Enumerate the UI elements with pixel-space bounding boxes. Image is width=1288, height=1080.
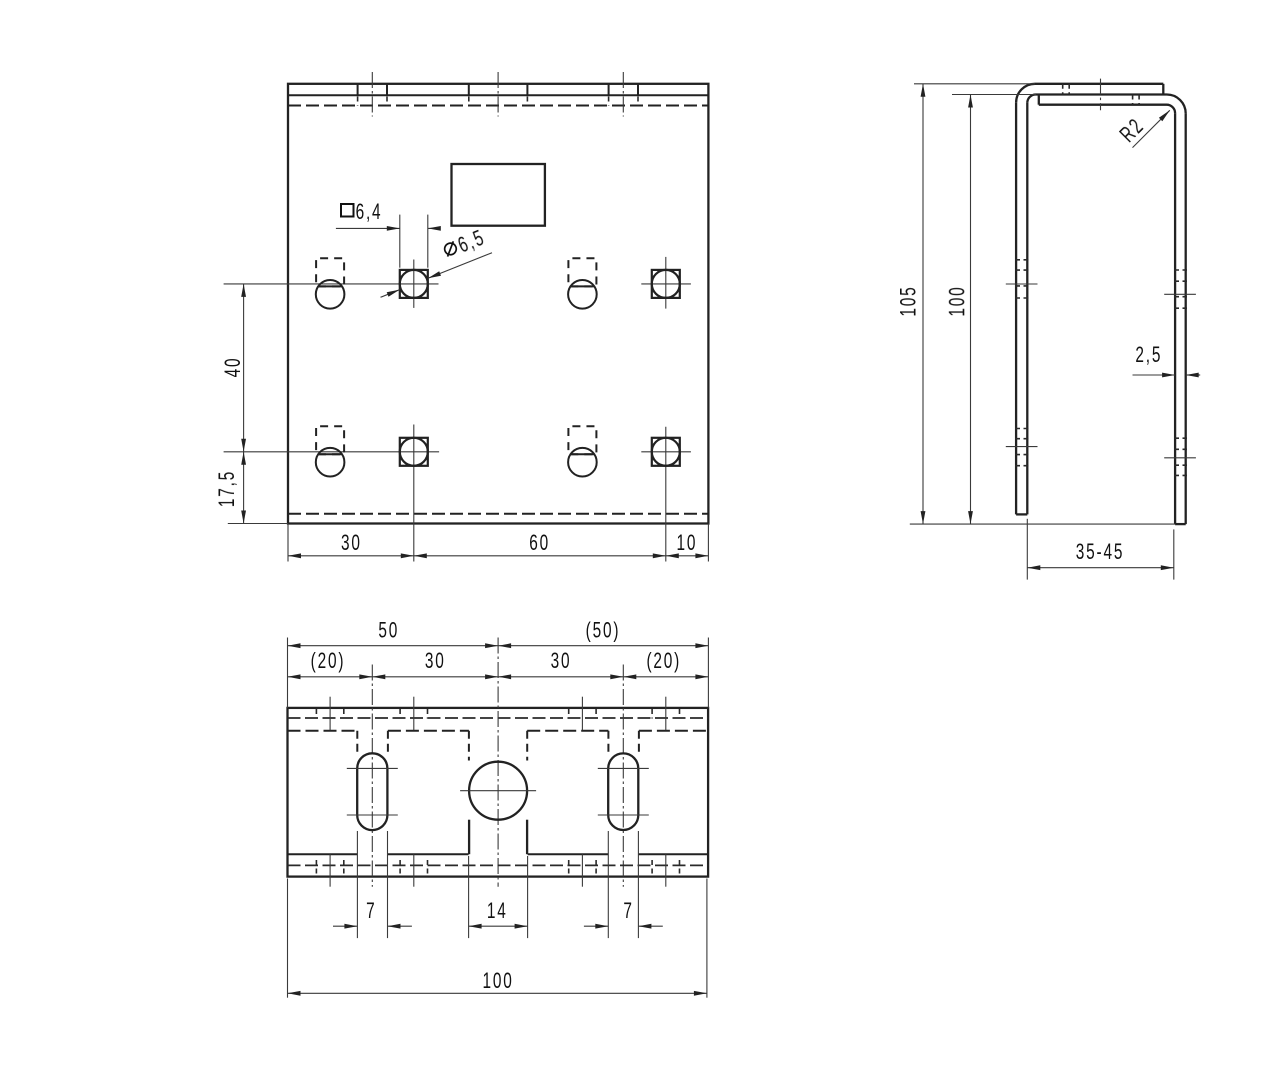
svg-text:40: 40 [221,357,245,378]
svg-text:14: 14 [487,900,508,924]
svg-text:30: 30 [425,649,446,673]
svg-text:30: 30 [551,649,572,673]
svg-text:(50): (50) [586,619,621,643]
svg-text:2,5: 2,5 [1135,343,1162,367]
svg-text:10: 10 [677,532,698,556]
svg-text:30: 30 [341,532,362,556]
svg-text:100: 100 [483,970,514,994]
svg-text:17,5: 17,5 [215,470,239,507]
svg-text:(20): (20) [311,649,346,673]
svg-text:100: 100 [946,285,970,316]
svg-text:50: 50 [378,619,399,643]
svg-text:60: 60 [529,532,550,556]
svg-text:(20): (20) [646,649,681,673]
svg-text:7: 7 [366,900,376,924]
svg-text:35-45: 35-45 [1076,540,1124,564]
svg-text:105: 105 [897,285,921,316]
svg-text:6,4: 6,4 [356,200,383,224]
svg-text:7: 7 [623,900,633,924]
